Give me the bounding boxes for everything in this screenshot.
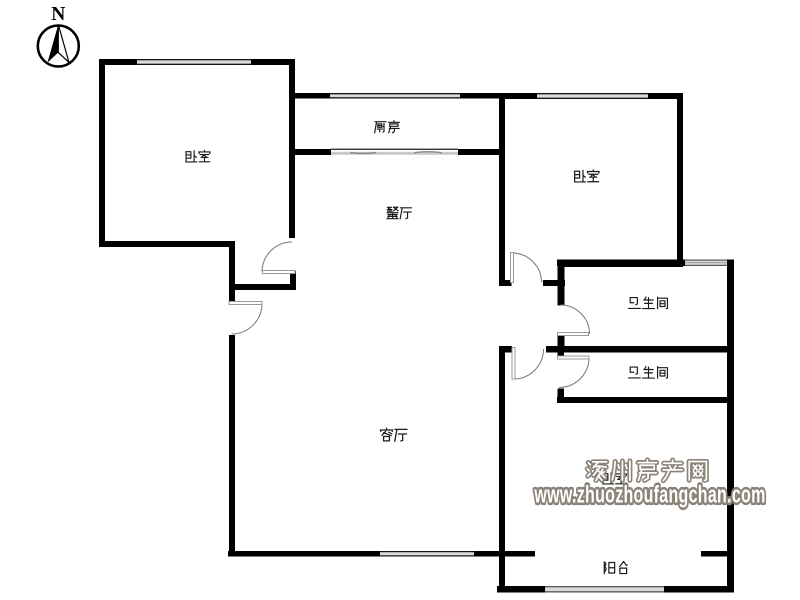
svg-text:www.zhuozhoufangchan.com: www.zhuozhoufangchan.com: [534, 481, 766, 508]
svg-text:N: N: [51, 4, 65, 25]
